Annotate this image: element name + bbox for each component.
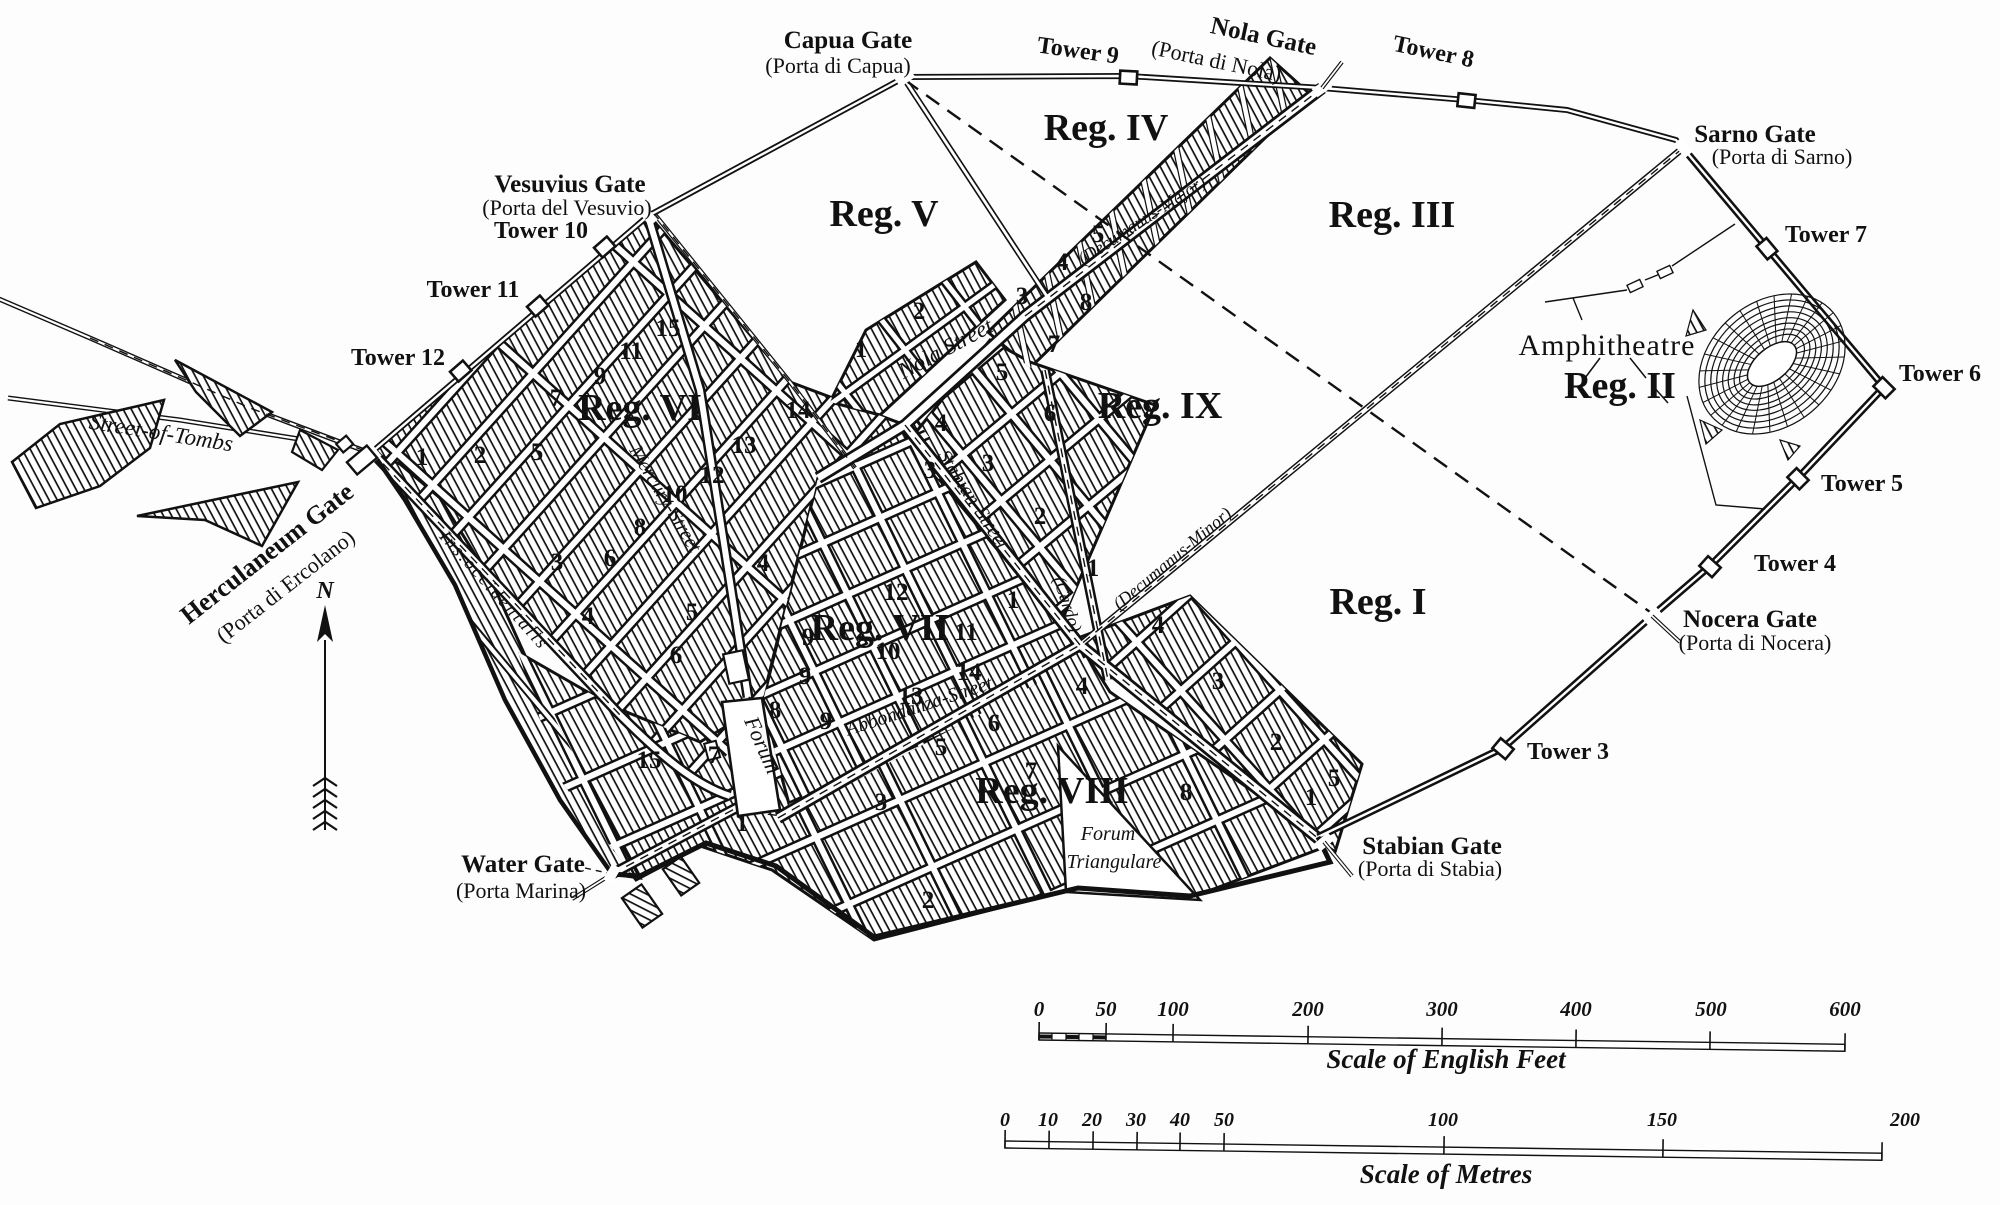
svg-text:4: 4 <box>935 410 948 437</box>
svg-text:100: 100 <box>1157 997 1189 1021</box>
svg-text:200: 200 <box>1291 997 1324 1021</box>
svg-text:5: 5 <box>1328 765 1341 792</box>
svg-text:1: 1 <box>855 336 868 363</box>
svg-text:1: 1 <box>1007 587 1020 614</box>
svg-text:Nocera Gate: Nocera Gate <box>1683 606 1817 633</box>
svg-text:10: 10 <box>1038 1109 1058 1131</box>
svg-text:50: 50 <box>1096 997 1118 1021</box>
svg-text:600: 600 <box>1829 997 1861 1021</box>
svg-text:(Porta di Capua): (Porta di Capua) <box>765 53 910 78</box>
svg-text:500: 500 <box>1695 997 1727 1021</box>
svg-text:Tower 11: Tower 11 <box>427 277 520 303</box>
svg-text:4: 4 <box>582 603 595 630</box>
svg-text:12: 12 <box>700 462 725 489</box>
svg-text:150: 150 <box>1647 1109 1677 1131</box>
svg-text:6: 6 <box>1044 400 1057 427</box>
svg-text:Tower 3: Tower 3 <box>1527 739 1609 765</box>
svg-text:Reg. IX: Reg. IX <box>1098 385 1223 427</box>
svg-text:15: 15 <box>656 315 681 342</box>
svg-text:2: 2 <box>913 298 926 325</box>
svg-text:4: 4 <box>1076 673 1089 700</box>
svg-text:5: 5 <box>531 439 544 466</box>
svg-text:Triangulare: Triangulare <box>1067 851 1162 873</box>
svg-text:1: 1 <box>736 810 749 837</box>
svg-text:3: 3 <box>982 450 995 477</box>
svg-text:8: 8 <box>1080 289 1093 316</box>
svg-text:7: 7 <box>1025 758 1038 785</box>
svg-text:8: 8 <box>634 514 647 541</box>
svg-text:10: 10 <box>876 638 901 665</box>
svg-text:Tower 7: Tower 7 <box>1785 222 1867 248</box>
svg-text:2: 2 <box>1034 503 1047 530</box>
svg-text:5: 5 <box>996 359 1009 386</box>
svg-text:Scale of Metres: Scale of Metres <box>1360 1159 1532 1189</box>
svg-text:2: 2 <box>474 442 487 469</box>
svg-text:Forum: Forum <box>1080 823 1135 845</box>
svg-text:(Porta di Sarno): (Porta di Sarno) <box>1712 144 1853 169</box>
svg-text:1: 1 <box>1087 555 1100 582</box>
svg-text:300: 300 <box>1425 997 1458 1021</box>
svg-text:3: 3 <box>1016 283 1029 310</box>
svg-text:(Porta Marina): (Porta Marina) <box>456 878 586 903</box>
svg-text:7: 7 <box>550 385 563 412</box>
svg-text:20: 20 <box>1081 1109 1102 1131</box>
svg-text:(Porta del Vesuvio): (Porta del Vesuvio) <box>482 195 651 220</box>
svg-text:5: 5 <box>686 599 699 626</box>
svg-text:0: 0 <box>1034 997 1045 1021</box>
svg-text:Capua Gate: Capua Gate <box>784 27 912 54</box>
svg-text:Tower 10: Tower 10 <box>494 218 588 244</box>
svg-text:11: 11 <box>619 338 643 365</box>
svg-text:2: 2 <box>922 887 935 914</box>
svg-text:Reg. VI: Reg. VI <box>578 387 702 429</box>
svg-text:Tower 5: Tower 5 <box>1821 471 1903 497</box>
svg-text:200: 200 <box>1889 1109 1920 1131</box>
svg-text:4: 4 <box>1056 249 1069 276</box>
svg-text:13: 13 <box>732 432 757 459</box>
svg-text:4: 4 <box>757 550 770 577</box>
svg-text:6: 6 <box>604 545 617 572</box>
svg-text:400: 400 <box>1559 997 1592 1021</box>
svg-text:3: 3 <box>875 789 888 816</box>
svg-text:Tower 12: Tower 12 <box>351 345 445 371</box>
svg-text:5: 5 <box>1092 221 1105 248</box>
svg-text:Vesuvius Gate: Vesuvius Gate <box>494 171 645 198</box>
svg-text:Reg. VIII: Reg. VIII <box>975 770 1128 812</box>
svg-text:9: 9 <box>820 708 833 735</box>
svg-text:(Porta di Nocera): (Porta di Nocera) <box>1679 630 1832 655</box>
svg-text:6: 6 <box>670 642 683 669</box>
svg-text:4: 4 <box>1152 612 1165 639</box>
svg-text:7: 7 <box>1048 331 1061 358</box>
svg-text:Tower 6: Tower 6 <box>1899 361 1981 387</box>
svg-text:5: 5 <box>935 734 948 761</box>
svg-text:Scale of English Feet: Scale of English Feet <box>1326 1044 1567 1074</box>
svg-text:N: N <box>315 578 335 604</box>
svg-text:13: 13 <box>899 683 924 710</box>
svg-text:Tower 4: Tower 4 <box>1754 551 1836 577</box>
svg-text:3: 3 <box>551 549 564 576</box>
svg-text:6: 6 <box>988 710 1001 737</box>
svg-text:7: 7 <box>708 742 721 769</box>
svg-text:14: 14 <box>957 659 983 686</box>
svg-text:40: 40 <box>1169 1109 1190 1131</box>
svg-text:9: 9 <box>802 624 815 651</box>
svg-text:100: 100 <box>1428 1109 1458 1131</box>
svg-text:Reg. V: Reg. V <box>829 193 939 235</box>
svg-text:30: 30 <box>1125 1109 1146 1131</box>
svg-text:14: 14 <box>786 397 812 424</box>
svg-text:9: 9 <box>799 663 812 690</box>
svg-text:9: 9 <box>594 363 607 390</box>
svg-text:3: 3 <box>924 457 937 484</box>
svg-text:8: 8 <box>1180 779 1193 806</box>
svg-text:2: 2 <box>1270 729 1283 756</box>
svg-text:8: 8 <box>769 697 782 724</box>
svg-text:Reg. IV: Reg. IV <box>1044 107 1169 149</box>
svg-text:(Porta di Stabia): (Porta di Stabia) <box>1358 856 1502 881</box>
svg-text:0: 0 <box>1000 1109 1010 1131</box>
svg-text:Reg. III: Reg. III <box>1329 194 1456 236</box>
svg-text:Water Gate: Water Gate <box>461 851 585 878</box>
svg-text:50: 50 <box>1214 1109 1234 1131</box>
svg-text:1: 1 <box>416 444 429 471</box>
svg-text:10: 10 <box>663 481 688 508</box>
svg-text:11: 11 <box>954 619 978 646</box>
svg-text:3: 3 <box>1212 668 1225 695</box>
svg-text:Amphitheatre: Amphitheatre <box>1519 329 1696 362</box>
svg-text:15: 15 <box>637 747 662 774</box>
svg-text:1: 1 <box>1305 784 1318 811</box>
svg-text:Reg. II: Reg. II <box>1564 365 1676 407</box>
svg-text:12: 12 <box>884 579 909 606</box>
svg-text:Reg. I: Reg. I <box>1329 581 1426 623</box>
